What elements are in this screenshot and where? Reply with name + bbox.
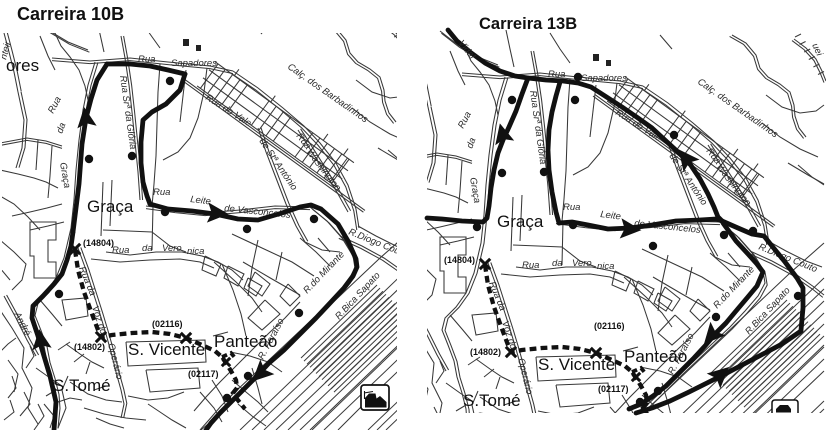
svg-text:ores: ores: [6, 56, 39, 75]
svg-text:Carreira 13B: Carreira 13B: [479, 15, 577, 33]
svg-text:(14804): (14804): [83, 238, 114, 248]
svg-text:Vidal: Vidal: [456, 38, 478, 62]
svg-text:(02117): (02117): [598, 384, 629, 394]
svg-text:Carreira 10B: Carreira 10B: [17, 4, 124, 24]
svg-text:André: André: [11, 309, 33, 337]
svg-text:(02117): (02117): [188, 369, 219, 379]
svg-text:(02116): (02116): [594, 321, 625, 331]
svg-text:(14802): (14802): [470, 347, 501, 357]
svg-text:(02116): (02116): [152, 319, 183, 329]
svg-text:(14802): (14802): [74, 342, 105, 352]
svg-text:(14804): (14804): [444, 255, 475, 265]
